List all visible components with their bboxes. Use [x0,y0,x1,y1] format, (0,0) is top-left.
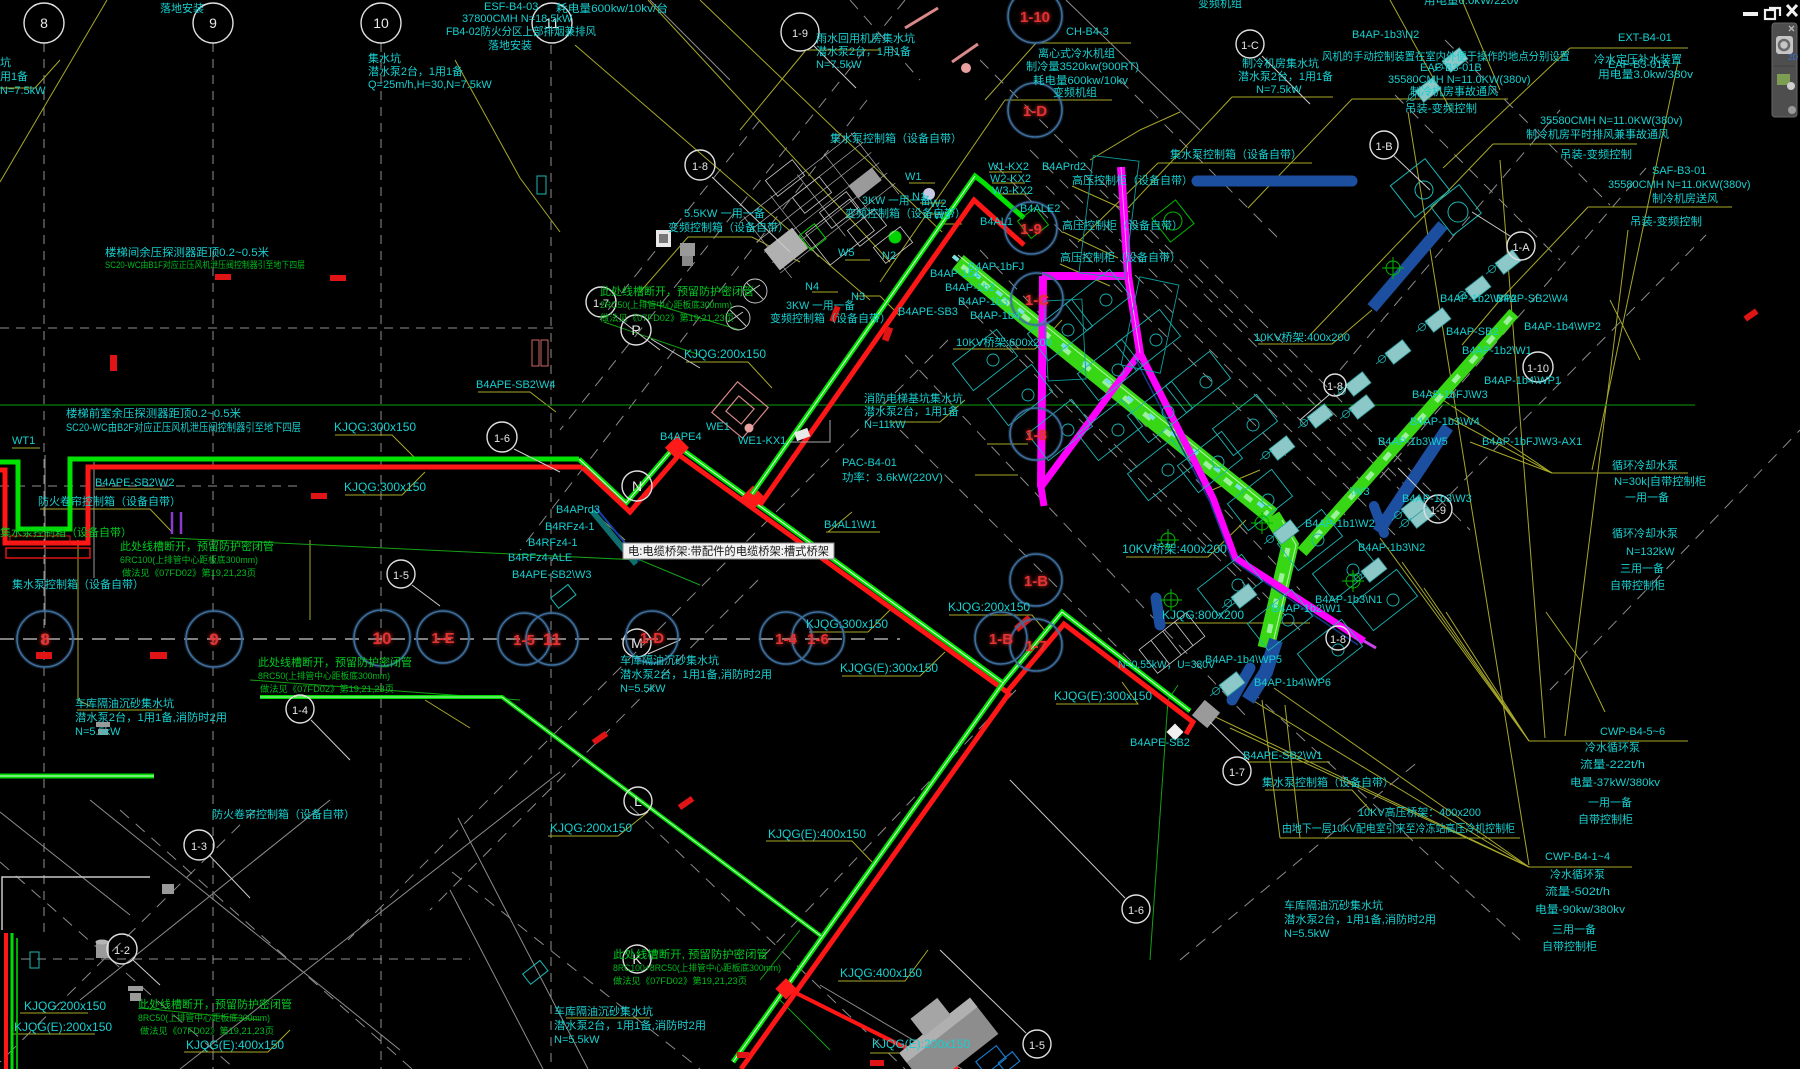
svg-text:吊装-变频控制: 吊装-变频控制 [1560,147,1632,161]
svg-text:B4AP-1b3\W5: B4AP-1b3\W5 [1378,436,1448,448]
svg-text:P: P [631,322,640,338]
svg-text:做法见《07FD02》第19,21,23页: 做法见《07FD02》第19,21,23页 [600,312,734,323]
svg-text:1-10: 1-10 [1527,363,1549,375]
svg-text:B4AP-1bFJ\W3: B4AP-1bFJ\W3 [1412,389,1488,401]
svg-text:B4APE-SB3: B4APE-SB3 [898,306,958,318]
svg-text:N2: N2 [882,250,896,262]
svg-text:B4AP-1b4\WP2: B4AP-1b4\WP2 [1524,321,1601,333]
svg-text:W3-KX2: W3-KX2 [992,185,1033,197]
svg-text:EAF-B3-01A: EAF-B3-01A [1608,59,1670,71]
svg-text:集水泵控制箱（设备自带）: 集水泵控制箱（设备自带） [1262,775,1394,789]
svg-text:N=5.5kW: N=5.5kW [620,683,666,695]
svg-text:变频控制箱（设备自带）: 变频控制箱（设备自带） [770,311,891,325]
svg-text:高压控制柜（设备自带）: 高压控制柜（设备自带） [1072,173,1193,187]
svg-text:1-6: 1-6 [1128,905,1144,917]
svg-text:集水泵控制箱（设备自带）: 集水泵控制箱（设备自带） [830,131,962,145]
svg-text:CWP-B4-5~6: CWP-B4-5~6 [1600,726,1665,738]
svg-text:N=132kW: N=132kW [1626,546,1675,558]
svg-text:循环冷却水泵: 循环冷却水泵 [1612,459,1678,472]
svg-text:B4AP-1b3\N2: B4AP-1b3\N2 [1358,542,1425,554]
svg-text:3KW 一用一备: 3KW 一用一备 [786,298,855,312]
svg-text:1-4: 1-4 [775,631,797,648]
svg-text:KJQG:200x150: KJQG:200x150 [24,999,106,1013]
svg-text:1-8: 1-8 [1025,427,1047,444]
svg-text:L: L [634,793,642,809]
svg-text:8RC100+8RC50(上排管中心距板底300mm): 8RC100+8RC50(上排管中心距板底300mm) [613,962,781,973]
svg-text:车库隔油沉砂集水坑: 车库隔油沉砂集水坑 [1284,898,1383,912]
svg-text:1-8: 1-8 [1330,634,1346,646]
svg-text:潜水泵2台，1用1备,消防时2用: 潜水泵2台，1用1备,消防时2用 [1284,912,1436,926]
svg-text:W1: W1 [905,171,922,183]
svg-text:自带控制柜: 自带控制柜 [1578,812,1633,826]
svg-text:KJQG:300x150: KJQG:300x150 [806,617,888,631]
svg-text:此处线槽断开，预留防护密闭管: 此处线槽断开，预留防护密闭管 [600,284,754,298]
svg-text:B4AP-SB2: B4AP-SB2 [1446,326,1499,338]
svg-text:制冷机房集水坑: 制冷机房集水坑 [1242,56,1319,70]
svg-text:10KV桥架:600x200: 10KV桥架:600x200 [956,336,1052,349]
svg-text:KJQG:400x150: KJQG:400x150 [840,966,922,980]
svg-text:KJQG:200x150: KJQG:200x150 [550,821,632,835]
svg-text:一用一备: 一用一备 [1625,490,1669,504]
svg-text:1-C: 1-C [1025,292,1049,309]
svg-text:防火卷帘控制箱（设备自带）: 防火卷帘控制箱（设备自带） [212,807,355,821]
svg-text:1-8: 1-8 [1327,381,1343,393]
svg-text:2RC50(上排管中心距板底300mm): 2RC50(上排管中心距板底300mm) [600,299,732,310]
svg-text:SC20-WC由B1F对应正压风机泄压阀控制器引至地下四层: SC20-WC由B1F对应正压风机泄压阀控制器引至地下四层 [105,259,305,270]
svg-text:集水坑: 集水坑 [368,51,401,65]
svg-text:B4APE4: B4APE4 [660,431,702,443]
svg-text:KJQG:200x150: KJQG:200x150 [948,600,1030,614]
svg-text:消防电梯基坑集水坑: 消防电梯基坑集水坑 [864,391,963,405]
svg-text:B4ALE2: B4ALE2 [1020,203,1060,215]
svg-text:此处线槽断开，预留防护密闭管: 此处线槽断开，预留防护密闭管 [258,655,412,669]
svg-text:1-5: 1-5 [513,632,535,649]
svg-text:PAC-B4-01: PAC-B4-01 [842,457,897,469]
svg-text:车库隔油沉砂集水坑: 车库隔油沉砂集水坑 [75,696,174,710]
svg-text:KJQG:300x150: KJQG:300x150 [334,420,416,434]
svg-text:N=11kW: N=11kW [864,419,906,431]
svg-text:1-A: 1-A [1512,242,1530,254]
svg-text:B4AP-1b2\W1: B4AP-1b2\W1 [1462,345,1532,357]
svg-text:KJQG:200x150: KJQG:200x150 [684,347,766,361]
svg-text:8: 8 [40,630,49,649]
svg-text:自带控制柜: 自带控制柜 [1610,578,1665,592]
svg-text:集水泵控制箱（设备自带）: 集水泵控制箱（设备自带） [12,577,144,591]
svg-text:1-6: 1-6 [807,631,829,648]
svg-text:制冷机房事故通风: 制冷机房事故通风 [1410,84,1498,98]
svg-text:B4AP-1b4\WP5: B4AP-1b4\WP5 [1205,654,1282,666]
svg-text:B4AP-1b3\W4: B4AP-1b3\W4 [1410,416,1480,428]
svg-text:WE1: WE1 [706,421,730,433]
svg-text:10KV高压桥架：400x200: 10KV高压桥架：400x200 [1358,805,1481,819]
svg-text:潜水泵2台，1用1备,消防时2用: 潜水泵2台，1用1备,消防时2用 [75,710,227,724]
svg-text:KJQG:300x150: KJQG:300x150 [344,480,426,494]
svg-text:1-9: 1-9 [1430,505,1446,517]
svg-text:B4APE-SB2\W1: B4APE-SB2\W1 [1243,750,1322,762]
svg-text:10KV桥架:400x200: 10KV桥架:400x200 [1122,542,1227,556]
svg-text:循环冷却水泵: 循环冷却水泵 [1612,527,1678,540]
svg-text:Q=25m/h,H=30,N=7.5kW: Q=25m/h,H=30,N=7.5kW [368,79,492,91]
svg-text:雨水回用机房集水坑: 雨水回用机房集水坑 [816,31,915,45]
svg-text:KJQG(E):200x150: KJQG(E):200x150 [14,1020,112,1034]
svg-text:WE1-KX1: WE1-KX1 [738,435,786,447]
svg-text:N4: N4 [805,281,819,293]
svg-text:楼梯前室余压探测器距顶0.2~0.5米: 楼梯前室余压探测器距顶0.2~0.5米 [66,406,241,420]
svg-text:KJQG(E):300x150: KJQG(E):300x150 [1054,689,1152,703]
svg-text:1-2: 1-2 [114,945,130,957]
svg-text:10KV桥架:400x200: 10KV桥架:400x200 [1254,331,1350,344]
svg-text:集水泵控制箱（设备自带）: 集水泵控制箱（设备自带） [1170,147,1302,161]
svg-text:1-B: 1-B [1375,141,1392,153]
svg-text:B4AP-1b2\WP2: B4AP-1b2\WP2 [1440,293,1517,305]
svg-text:8RC50(上排管中心距板底300mm): 8RC50(上排管中心距板底300mm) [138,1012,270,1023]
svg-text:用电量6.0kW/220v: 用电量6.0kW/220v [1424,0,1520,7]
svg-text:此处线槽断开，预留防护密闭管: 此处线槽断开，预留防护密闭管 [120,539,274,553]
svg-text:2D: 2D [1788,53,1798,62]
svg-text:1-7: 1-7 [1229,767,1245,779]
svg-text:自带控制柜: 自带控制柜 [1542,939,1597,953]
svg-text:做法见《07FD02》第19,21,23页: 做法见《07FD02》第19,21,23页 [122,567,256,578]
svg-text:一用一备: 一用一备 [1588,795,1632,809]
svg-text:1-5: 1-5 [393,570,409,582]
svg-text:冷水循环泵: 冷水循环泵 [1585,741,1640,754]
svg-text:落地安装: 落地安装 [488,38,532,52]
svg-text:3KW 一用一备: 3KW 一用一备 [862,193,931,207]
svg-text:8RC50(上排管中心距板底300mm): 8RC50(上排管中心距板底300mm) [258,670,390,681]
svg-text:\W3: \W3 [1350,486,1370,498]
svg-text:B4APrd3: B4APrd3 [556,504,600,516]
svg-text:N=30k|自带控制柜: N=30k|自带控制柜 [1614,474,1706,488]
svg-text:B4AP-1b3\W3: B4AP-1b3\W3 [1402,493,1472,505]
svg-text:B4APE-SB2: B4APE-SB2 [1130,737,1190,749]
svg-text:9: 9 [209,15,217,31]
svg-text:三用一备: 三用一备 [1620,561,1664,575]
svg-text:N=7.5kW: N=7.5kW [0,85,46,97]
svg-text:变频控制箱（设备自带）: 变频控制箱（设备自带） [845,206,966,220]
svg-text:B4APE-SB2\W2: B4APE-SB2\W2 [95,477,174,489]
svg-text:变频控制箱（设备自带）: 变频控制箱（设备自带） [668,220,789,234]
svg-text:由地下一层10KV配电室引来至冷冻站高压冷机控制柜: 由地下一层10KV配电室引来至冷冻站高压冷机控制柜 [1282,821,1515,835]
svg-text:B4APE-SB2\W4: B4APE-SB2\W4 [476,379,555,391]
svg-text:冷水循环泵: 冷水循环泵 [1550,868,1605,881]
svg-text:1-B: 1-B [1024,573,1048,590]
svg-text:风机的手动控制装置在室内外便于操作的地点分别设置: 风机的手动控制装置在室内外便于操作的地点分别设置 [1322,49,1570,63]
svg-text:吊装-变频控制: 吊装-变频控制 [1630,214,1702,228]
svg-text:35580CMH N=11.0KW(380v): 35580CMH N=11.0KW(380v) [1608,179,1751,191]
svg-text:B4RFz4-ALE: B4RFz4-ALE [508,552,572,564]
svg-text:变频机组: 变频机组 [1198,0,1242,10]
svg-text:B4AP-1b4\WP6: B4AP-1b4\WP6 [1254,677,1331,689]
svg-text:WT1: WT1 [12,435,35,447]
svg-text:耗电量600kw/10kv: 耗电量600kw/10kv [1033,74,1129,87]
svg-text:B4AP-1b4: B4AP-1b4 [970,310,1020,322]
svg-text:做法见《07FD02》第19,21,23页: 做法见《07FD02》第19,21,23页 [140,1025,274,1036]
svg-text:35580CMH N=11.0KW(380v): 35580CMH N=11.0KW(380v) [1388,74,1531,86]
svg-text:车库隔油沉砂集水坑: 车库隔油沉砂集水坑 [620,653,719,667]
svg-text:KJQG(E):400x150: KJQG(E):400x150 [768,827,866,841]
svg-text:耗电量600kw/10kv/台: 耗电量600kw/10kv/台 [556,1,668,15]
svg-text:B4AP-1b2: B4AP-1b2 [945,282,995,294]
svg-text:10: 10 [373,629,392,648]
svg-text:EAF-B3-01B: EAF-B3-01B [1420,62,1482,74]
svg-text:B4AP-1bFJ: B4AP-1bFJ [968,261,1024,273]
svg-text:1-6: 1-6 [494,433,510,445]
svg-text:制冷机房平时排风兼事故通风: 制冷机房平时排风兼事故通风 [1526,127,1669,141]
svg-text:CH-B4-3: CH-B4-3 [1066,26,1109,38]
svg-text:N=5.5kW: N=5.5kW [1284,928,1330,940]
svg-text:5.5KW 一用一备: 5.5KW 一用一备 [684,206,765,220]
svg-text:1-7: 1-7 [1025,638,1047,655]
svg-text:N=0.55kW，U=380V: N=0.55kW，U=380V [1118,659,1216,671]
svg-text:SC20-WC由B2F对应正压风机泄压阀控制器引至地下四层: SC20-WC由B2F对应正压风机泄压阀控制器引至地下四层 [66,420,301,434]
svg-text:N=7.5kW: N=7.5kW [816,59,862,71]
svg-text:W2-KX2: W2-KX2 [990,173,1031,185]
svg-text:此处线槽断开，预留防护密闭管: 此处线槽断开，预留防护密闭管 [138,997,292,1011]
svg-text:1-10: 1-10 [1020,9,1050,26]
svg-text:6RC100(上排管中心距板底300mm): 6RC100(上排管中心距板底300mm) [120,554,258,565]
svg-text:潜水泵2台，1用1备: 潜水泵2台，1用1备 [864,404,959,418]
svg-text:电:电缆桥架:带配件的电缆桥架:槽式桥架: 电:电缆桥架:带配件的电缆桥架:槽式桥架 [628,544,829,558]
svg-text:KJQG(E):300x150: KJQG(E):300x150 [840,661,938,675]
svg-text:B4APrd2: B4APrd2 [1042,161,1086,173]
svg-text:吊装-变频控制: 吊装-变频控制 [1405,101,1477,115]
svg-text:落地安装: 落地安装 [160,1,204,15]
svg-text:1-D: 1-D [640,630,664,647]
svg-text:高压控制柜（设备自带）: 高压控制柜（设备自带） [1060,250,1181,264]
svg-text:W1-KX2: W1-KX2 [988,161,1029,173]
svg-text:B4AP-1b1\W2: B4AP-1b1\W2 [1305,518,1375,530]
svg-text:流量-222t/h: 流量-222t/h [1580,757,1645,771]
svg-text:SAF-B3-01: SAF-B3-01 [1652,165,1706,177]
svg-text:8: 8 [40,15,48,31]
svg-text:B4AP-1b3: B4AP-1b3 [958,296,1008,308]
svg-text:35580CMH N=11.0KW(380v): 35580CMH N=11.0KW(380v) [1540,115,1683,127]
svg-text:B4AP-1b3\N2: B4AP-1b3\N2 [1352,29,1419,41]
svg-text:1-3: 1-3 [191,841,207,853]
svg-text:高压控制柜（设备自带）: 高压控制柜（设备自带） [1062,218,1183,232]
svg-text:KJQG:800x200: KJQG:800x200 [1162,608,1244,622]
svg-text:B4AP-1b4\WP1: B4AP-1b4\WP1 [1484,375,1561,387]
svg-text:潜水泵2台，1用1备,消防时2用: 潜水泵2台，1用1备,消防时2用 [554,1018,706,1032]
svg-text:车库隔油沉砂集水坑: 车库隔油沉砂集水坑 [554,1004,653,1018]
svg-text:功率：3.6kW(220V): 功率：3.6kW(220V) [842,470,943,484]
svg-text:离心式冷水机组: 离心式冷水机组 [1038,46,1115,60]
svg-text:10: 10 [373,15,389,31]
svg-text:B4RFz4-1: B4RFz4-1 [545,521,595,533]
svg-text:流量-502t/h: 流量-502t/h [1545,884,1610,898]
svg-text:楼梯间余压探测器距顶0.2~0.5米: 楼梯间余压探测器距顶0.2~0.5米 [105,245,269,259]
svg-text:CWP-B4-1~4: CWP-B4-1~4 [1545,851,1610,863]
svg-text:1-9: 1-9 [792,28,808,40]
svg-text:KJQG(E):400x150: KJQG(E):400x150 [186,1038,284,1052]
svg-text:11: 11 [543,630,561,649]
svg-text:B4AL1: B4AL1 [980,216,1013,228]
svg-text:1-9: 1-9 [1020,221,1042,238]
svg-text:制冷量3520kw(900RT): 制冷量3520kw(900RT) [1026,60,1139,73]
svg-text:做法见《07FD02》第19,21,23页: 做法见《07FD02》第19,21,23页 [613,975,747,986]
svg-text:1-8: 1-8 [692,161,708,173]
svg-text:用1备: 用1备 [0,69,28,83]
svg-text:FB4-02防火分区上部排烟兼排风: FB4-02防火分区上部排烟兼排风 [446,24,596,38]
svg-text:潜水泵2台，1用1备: 潜水泵2台，1用1备 [1238,69,1333,83]
svg-text:9: 9 [209,630,218,649]
svg-text:电量-37kW/380kv: 电量-37kW/380kv [1570,776,1661,789]
svg-text:此处线槽断开, 预留防护密闭管: 此处线槽断开, 预留防护密闭管 [613,947,768,961]
svg-text:EXT-B4-01: EXT-B4-01 [1618,32,1672,44]
svg-text:集水泵控制箱（设备自带）: 集水泵控制箱（设备自带） [0,525,132,539]
svg-text:1-4: 1-4 [292,705,308,717]
svg-text:做法见《07FD02》第19,21,23页: 做法见《07FD02》第19,21,23页 [260,683,394,694]
svg-text:B4APE-SB2\W3: B4APE-SB2\W3 [512,569,591,581]
svg-text:防火卷帘控制箱（设备自带）: 防火卷帘控制箱（设备自带） [38,494,181,508]
svg-text:B4AP-1bFJ\W3-AX1: B4AP-1bFJ\W3-AX1 [1482,436,1582,448]
svg-text:N=5.5kW: N=5.5kW [554,1034,600,1046]
svg-text:ESF-B4-03: ESF-B4-03 [484,1,538,13]
svg-text:1-D: 1-D [1023,103,1047,120]
svg-text:变频机组: 变频机组 [1053,85,1097,99]
svg-text:潜水泵2台，1用1备,消防时2用: 潜水泵2台，1用1备,消防时2用 [620,667,772,681]
svg-text:1-5: 1-5 [1029,1040,1045,1052]
svg-text:N: N [632,478,642,494]
svg-text:电量-90kw/380kv: 电量-90kw/380kv [1535,903,1626,916]
svg-text:B4AP-1b2\W1: B4AP-1b2\W1 [1272,603,1342,615]
svg-text:1-C: 1-C [1241,40,1259,52]
svg-text:潜水泵2台，1用1备: 潜水泵2台，1用1备 [816,44,911,58]
svg-text:制冷机房送风: 制冷机房送风 [1652,191,1718,205]
svg-text:1-B: 1-B [989,631,1013,648]
svg-text:坑: 坑 [0,55,11,69]
svg-text:潜水泵2台，1用1备: 潜水泵2台，1用1备 [368,64,463,78]
svg-text:N=7.5kW: N=7.5kW [1256,84,1302,96]
svg-text:三用一备: 三用一备 [1552,922,1596,936]
svg-text:N=5.5kW: N=5.5kW [75,726,121,738]
svg-text:B4AL1\W1: B4AL1\W1 [824,519,877,531]
svg-text:KJQG(E):200x150: KJQG(E):200x150 [872,1037,970,1051]
svg-text:1-E: 1-E [431,630,454,647]
svg-text:W5: W5 [838,247,855,259]
svg-text:B4RFz4-1: B4RFz4-1 [528,537,578,549]
